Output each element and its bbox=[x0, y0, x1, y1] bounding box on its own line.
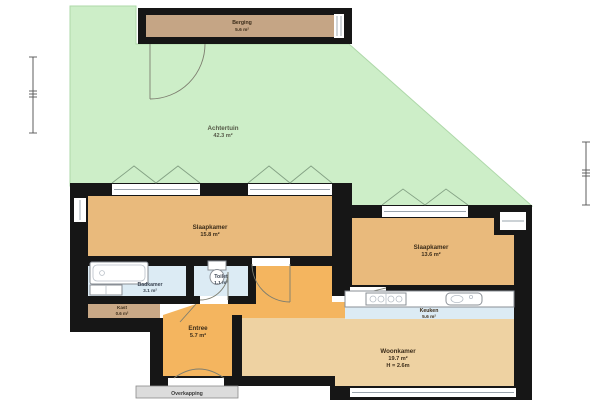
slaapkamer1-name: Slaapkamer bbox=[193, 224, 228, 231]
woonkamer-height: H = 2.6m bbox=[386, 363, 409, 369]
woonkamer-name: Woonkamer bbox=[380, 348, 416, 355]
entree-door-opening bbox=[168, 378, 224, 386]
keuken-area: 5.6 m² bbox=[422, 314, 436, 320]
overkapping-name: Overkapping bbox=[171, 391, 203, 397]
livingroom-floor bbox=[242, 318, 514, 386]
toilet-area: 1.1 m² bbox=[214, 280, 228, 286]
dimension-marker-left bbox=[29, 57, 37, 133]
badkamer-name: Badkamer bbox=[137, 282, 162, 288]
entree-name: Entree bbox=[188, 325, 208, 332]
room-berging bbox=[138, 8, 352, 44]
bedroom1-door-opening bbox=[252, 258, 290, 266]
entree-area: 5.7 m² bbox=[190, 332, 206, 339]
slaapkamer2-name: Slaapkamer bbox=[414, 244, 449, 251]
badkamer-area: 3.1 m² bbox=[143, 288, 157, 294]
berging-name: Berging bbox=[232, 20, 252, 26]
slaapkamer2-area: 13.6 m² bbox=[421, 251, 440, 258]
slaapkamer1-area: 15.8 m² bbox=[200, 231, 219, 238]
shed-window bbox=[334, 14, 344, 38]
room-label-kast: Kast 0.6 m² bbox=[116, 305, 129, 316]
garden-name: Achtertuin bbox=[208, 125, 239, 132]
keuken-name: Keuken bbox=[420, 308, 439, 314]
kast-area: 0.6 m² bbox=[116, 311, 129, 316]
room-label-overkapping: Overkapping bbox=[171, 391, 203, 397]
berging-area: 5.6 m² bbox=[235, 27, 249, 33]
toilet-name: Toilet bbox=[214, 274, 228, 280]
kast-name: Kast bbox=[117, 305, 127, 310]
floorplan-canvas: Berging 5.6 m² Achtertuin 42.3 m² Slaapk… bbox=[0, 0, 600, 400]
floorplan-drawing: Berging 5.6 m² Achtertuin 42.3 m² Slaapk… bbox=[0, 0, 600, 400]
garden-area-label: 42.3 m² bbox=[213, 132, 232, 139]
woonkamer-area: 19.7 m² bbox=[388, 355, 407, 362]
wc-cistern bbox=[208, 261, 226, 270]
dimension-marker-right bbox=[582, 142, 590, 205]
shed-floor bbox=[146, 15, 334, 37]
